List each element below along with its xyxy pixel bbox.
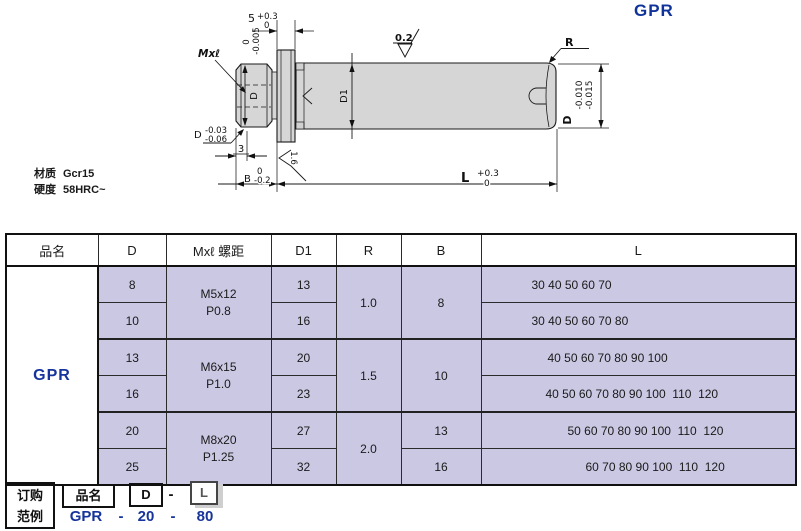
dimB-label: B: [244, 174, 251, 185]
thread-size: M8x20: [167, 432, 271, 449]
hardness-value: 58HRC~: [63, 184, 106, 196]
order-box-line1: 订购: [7, 485, 53, 506]
example-dash2: -: [166, 508, 180, 525]
cell-b: 16: [401, 449, 481, 486]
order-d-box: D: [129, 483, 163, 507]
example-product: GPR: [58, 508, 114, 525]
cell-d1: 16: [271, 303, 336, 340]
cell-d1: 20: [271, 339, 336, 376]
thread-pitch: P1.25: [167, 449, 271, 466]
cell-d1: 23: [271, 376, 336, 413]
cell-b: 8: [401, 266, 481, 339]
flange-section: [277, 50, 295, 142]
cell-thread: M6x15 P1.0: [166, 339, 271, 412]
material-note: 材质Gcr15: [34, 166, 106, 182]
header-thread: Mxℓ 螺距: [166, 234, 271, 266]
order-example-box: 订购 范例: [5, 482, 55, 529]
dim5-lower: 0: [264, 21, 269, 31]
order-box-line2: 范例: [7, 506, 53, 527]
material-label: 材质: [34, 168, 56, 180]
d1-label: D1: [339, 89, 350, 103]
table-row: 20 M8x20 P1.25 27 2.0 13 50 60 70 80 90 …: [6, 412, 796, 449]
cell-l: 40 50 60 70 80 90 100 110 120: [481, 376, 796, 413]
table-row: 25 32 16 60 70 80 90 100 110 120: [6, 449, 796, 486]
d-right-lower: -0.015: [585, 80, 595, 109]
cell-d1: 32: [271, 449, 336, 486]
cell-d: 13: [98, 339, 166, 376]
thread-pitch: P1.0: [167, 376, 271, 393]
cell-d: 10: [98, 303, 166, 340]
order-l-box: L: [190, 481, 218, 505]
d-thread-label: D: [249, 92, 260, 100]
dim5-value: 5: [248, 12, 255, 25]
example-d-value: 20: [128, 508, 164, 525]
thread-label: Mxℓ: [198, 48, 220, 60]
dimL-upper: +0.3: [477, 169, 499, 179]
cell-r: 2.0: [336, 412, 401, 485]
radius-label: R: [565, 36, 574, 49]
cell-d: 25: [98, 449, 166, 486]
thread-size: M6x15: [167, 359, 271, 376]
collar-tol-upper: 0: [242, 39, 252, 44]
example-dash1: -: [114, 508, 128, 525]
cell-l: 60 70 80 90 100 110 120: [481, 449, 796, 486]
hardness-label: 硬度: [34, 184, 56, 196]
spec-table: 品名 D Mxℓ 螺距 D1 R B L GPR 8 M5x12 P0.8 13…: [5, 233, 797, 486]
material-value: Gcr15: [63, 168, 94, 180]
table-row: 13 M6x15 P1.0 20 1.5 10 40 50 60 70 80 9…: [6, 339, 796, 376]
example-l-value: 80: [190, 508, 220, 525]
cell-thread: M5x12 P0.8: [166, 266, 271, 339]
finish-top-value: 0.2: [395, 33, 413, 44]
cell-b: 13: [401, 412, 481, 449]
product-name: GPR: [6, 266, 98, 485]
header-r: R: [336, 234, 401, 266]
material-notes: 材质Gcr15 硬度58HRC~: [34, 166, 106, 198]
cell-l: 30 40 50 60 70: [481, 266, 796, 303]
cell-r: 1.5: [336, 339, 401, 412]
header-d: D: [98, 234, 166, 266]
page-title: GPR: [634, 1, 674, 21]
finish-face-value: 1.6: [288, 151, 298, 165]
d-right-label: D: [561, 115, 574, 124]
header-d1: D1: [271, 234, 336, 266]
shaft-section: [296, 63, 556, 129]
thread-size: M5x12: [167, 286, 271, 303]
cell-b: 10: [401, 339, 481, 412]
collar-tol-lower: -0.005: [252, 27, 262, 54]
d-left-label: D: [194, 130, 202, 141]
d-right-upper: -0.010: [575, 80, 585, 109]
cell-l: 50 60 70 80 90 100 110 120: [481, 412, 796, 449]
dimL-lower: 0: [484, 179, 490, 189]
cell-l: 40 50 60 70 80 90 100: [481, 339, 796, 376]
dimB-lower: -0.2: [254, 176, 271, 186]
cell-l: 30 40 50 60 70 80: [481, 303, 796, 340]
header-l: L: [481, 234, 796, 266]
cell-d: 16: [98, 376, 166, 413]
cell-r: 1.0: [336, 266, 401, 339]
header-b: B: [401, 234, 481, 266]
cell-d1: 13: [271, 266, 336, 303]
header-row: 品名 D Mxℓ 螺距 D1 R B L: [6, 234, 796, 266]
finish-triangle: [398, 44, 412, 57]
thread-pitch: P0.8: [167, 303, 271, 320]
header-product: 品名: [6, 234, 98, 266]
d-left-lower: -0.06: [205, 135, 227, 145]
neck-section: [272, 72, 277, 119]
table-row: GPR 8 M5x12 P0.8 13 1.0 8 30 40 50 60 70: [6, 266, 796, 303]
dim3-value: 3: [238, 144, 244, 155]
technical-drawing: Mxℓ 5 +0.3 0 0 -0.005 0.2 R -0.010 -0.01…: [0, 0, 801, 231]
hardness-note: 硬度58HRC~: [34, 182, 106, 198]
cell-d1: 27: [271, 412, 336, 449]
order-part-label-box: 品名: [62, 484, 115, 508]
dimL-label: L: [461, 171, 469, 186]
cell-thread: M8x20 P1.25: [166, 412, 271, 485]
cell-d: 20: [98, 412, 166, 449]
order-dash: -: [164, 483, 178, 507]
cell-d: 8: [98, 266, 166, 303]
